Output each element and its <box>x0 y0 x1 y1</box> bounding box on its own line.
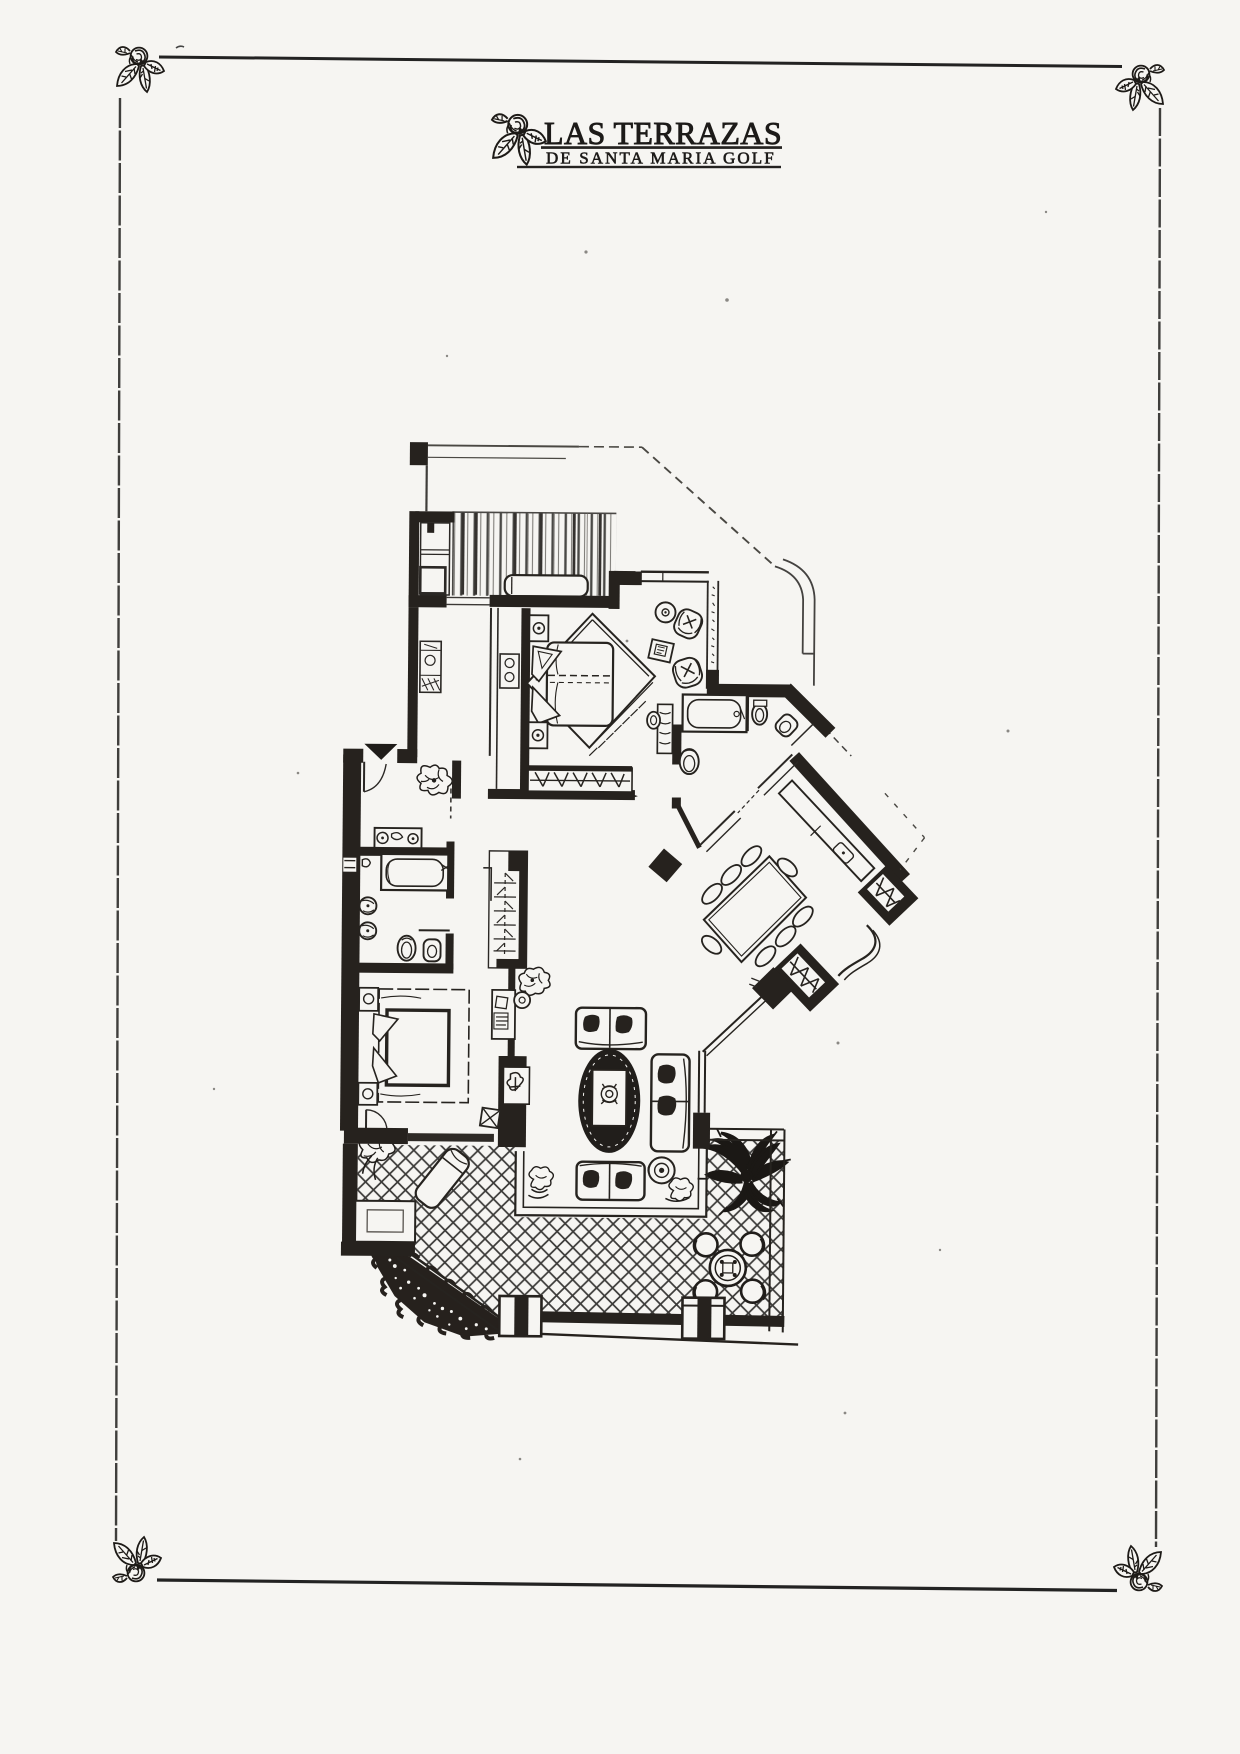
svg-text:DE SANTA MARIA GOLF: DE SANTA MARIA GOLF <box>546 149 776 168</box>
svg-text:LAS TERRAZAS: LAS TERRAZAS <box>544 115 782 151</box>
